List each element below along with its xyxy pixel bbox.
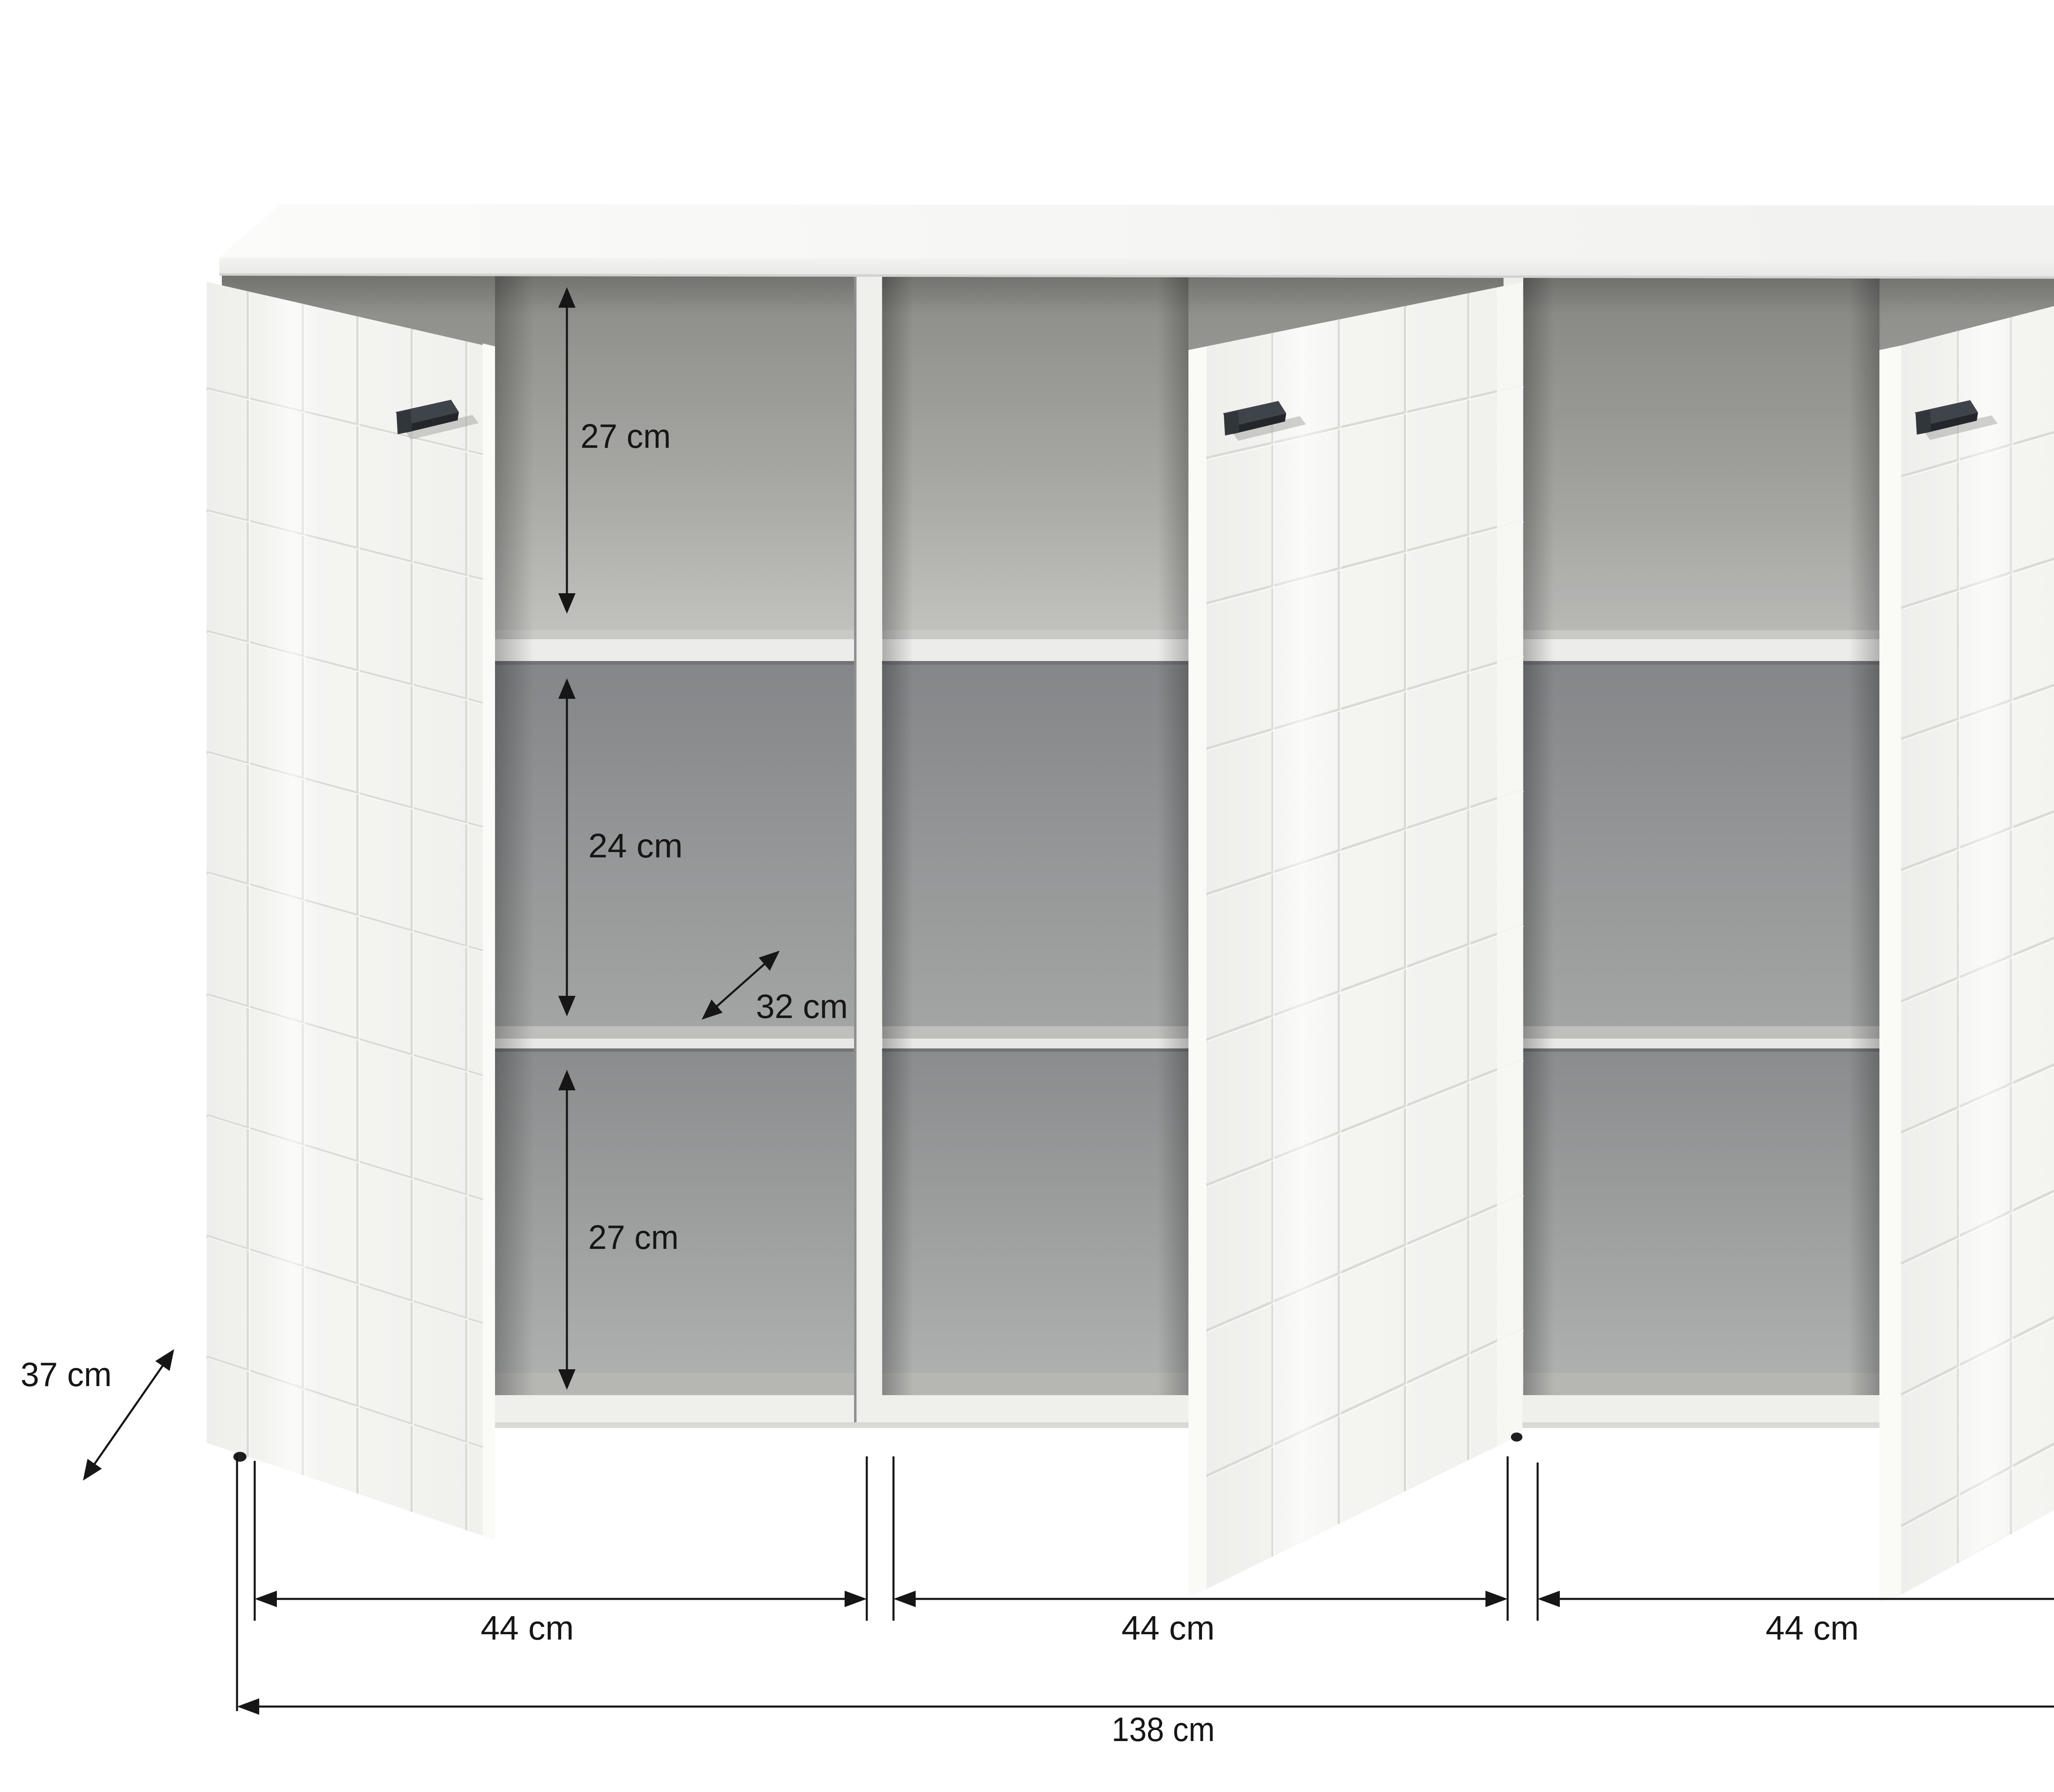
svg-text:32 cm: 32 cm [756, 987, 848, 1025]
svg-text:37 cm: 37 cm [21, 1355, 112, 1394]
svg-text:44 cm: 44 cm [1766, 1609, 1859, 1647]
svg-text:44 cm: 44 cm [1121, 1609, 1215, 1647]
svg-text:138 cm: 138 cm [1112, 1710, 1215, 1748]
svg-text:27 cm: 27 cm [580, 417, 671, 455]
svg-text:24 cm: 24 cm [588, 827, 683, 865]
svg-text:27 cm: 27 cm [588, 1218, 679, 1256]
svg-text:44 cm: 44 cm [481, 1609, 574, 1647]
